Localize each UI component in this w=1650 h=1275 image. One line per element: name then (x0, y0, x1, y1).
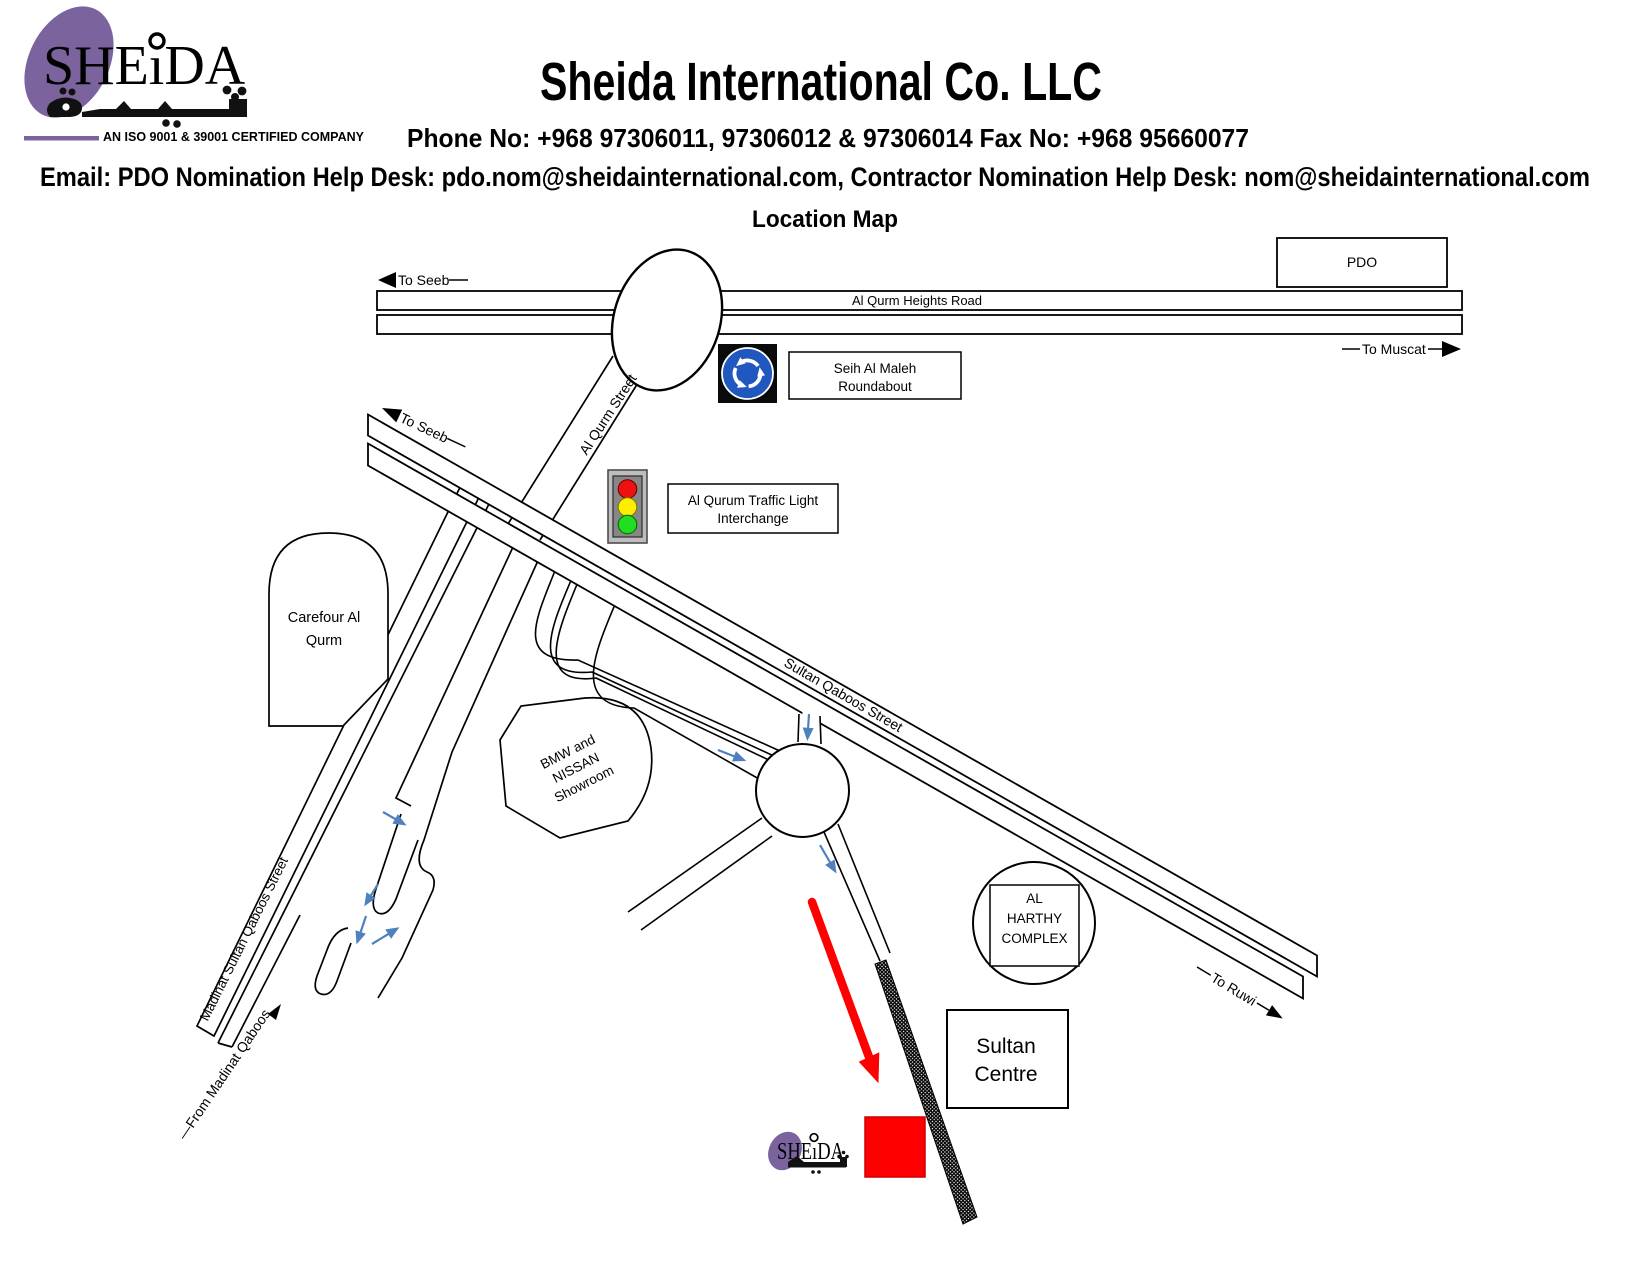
svg-text:Phone No: +968 97306011, 97306: Phone No: +968 97306011, 97306012 & 9730… (407, 123, 1249, 153)
svg-text:To Muscat: To Muscat (1362, 341, 1426, 357)
svg-text:Al Qurm Heights Road: Al Qurm Heights Road (852, 293, 982, 308)
svg-text:Seih Al Maleh: Seih Al Maleh (834, 361, 917, 376)
svg-text:Roundabout: Roundabout (838, 379, 912, 394)
svg-text:Qurm: Qurm (306, 633, 342, 649)
svg-text:SHEıDA: SHEıDA (777, 1139, 845, 1165)
svg-text:HARTHY: HARTHY (1007, 911, 1062, 926)
svg-text:Sultan: Sultan (976, 1035, 1036, 1058)
svg-text:Carefour Al: Carefour Al (288, 610, 361, 626)
svg-text:Location Map: Location Map (752, 206, 898, 233)
svg-text:Al Qurum Traffic Light: Al Qurum Traffic Light (688, 493, 819, 508)
svg-text:Interchange: Interchange (717, 511, 788, 526)
svg-text:Email: PDO Nomination Help Des: Email: PDO Nomination Help Desk: pdo.nom… (40, 162, 1590, 192)
svg-text:—From Madinat Qaboos: —From Madinat Qaboos (174, 1006, 273, 1142)
svg-text:To Ruwi: To Ruwi (1208, 969, 1259, 1008)
svg-text:AL: AL (1026, 891, 1043, 906)
svg-text:To Seeb: To Seeb (398, 272, 450, 288)
svg-text:Madinat Sultan Qaboos Street: Madinat Sultan Qaboos Street (197, 854, 291, 1023)
svg-text:PDO: PDO (1347, 254, 1377, 270)
svg-text:SHEıDA: SHEıDA (43, 35, 246, 97)
svg-text:Centre: Centre (974, 1063, 1037, 1086)
svg-text:AN ISO 9001 & 39001 CERTIFIED: AN ISO 9001 & 39001 CERTIFIED COMPANY (103, 130, 365, 144)
svg-text:COMPLEX: COMPLEX (1001, 931, 1067, 946)
svg-text:Sheida International Co. LLC: Sheida International Co. LLC (540, 52, 1102, 112)
